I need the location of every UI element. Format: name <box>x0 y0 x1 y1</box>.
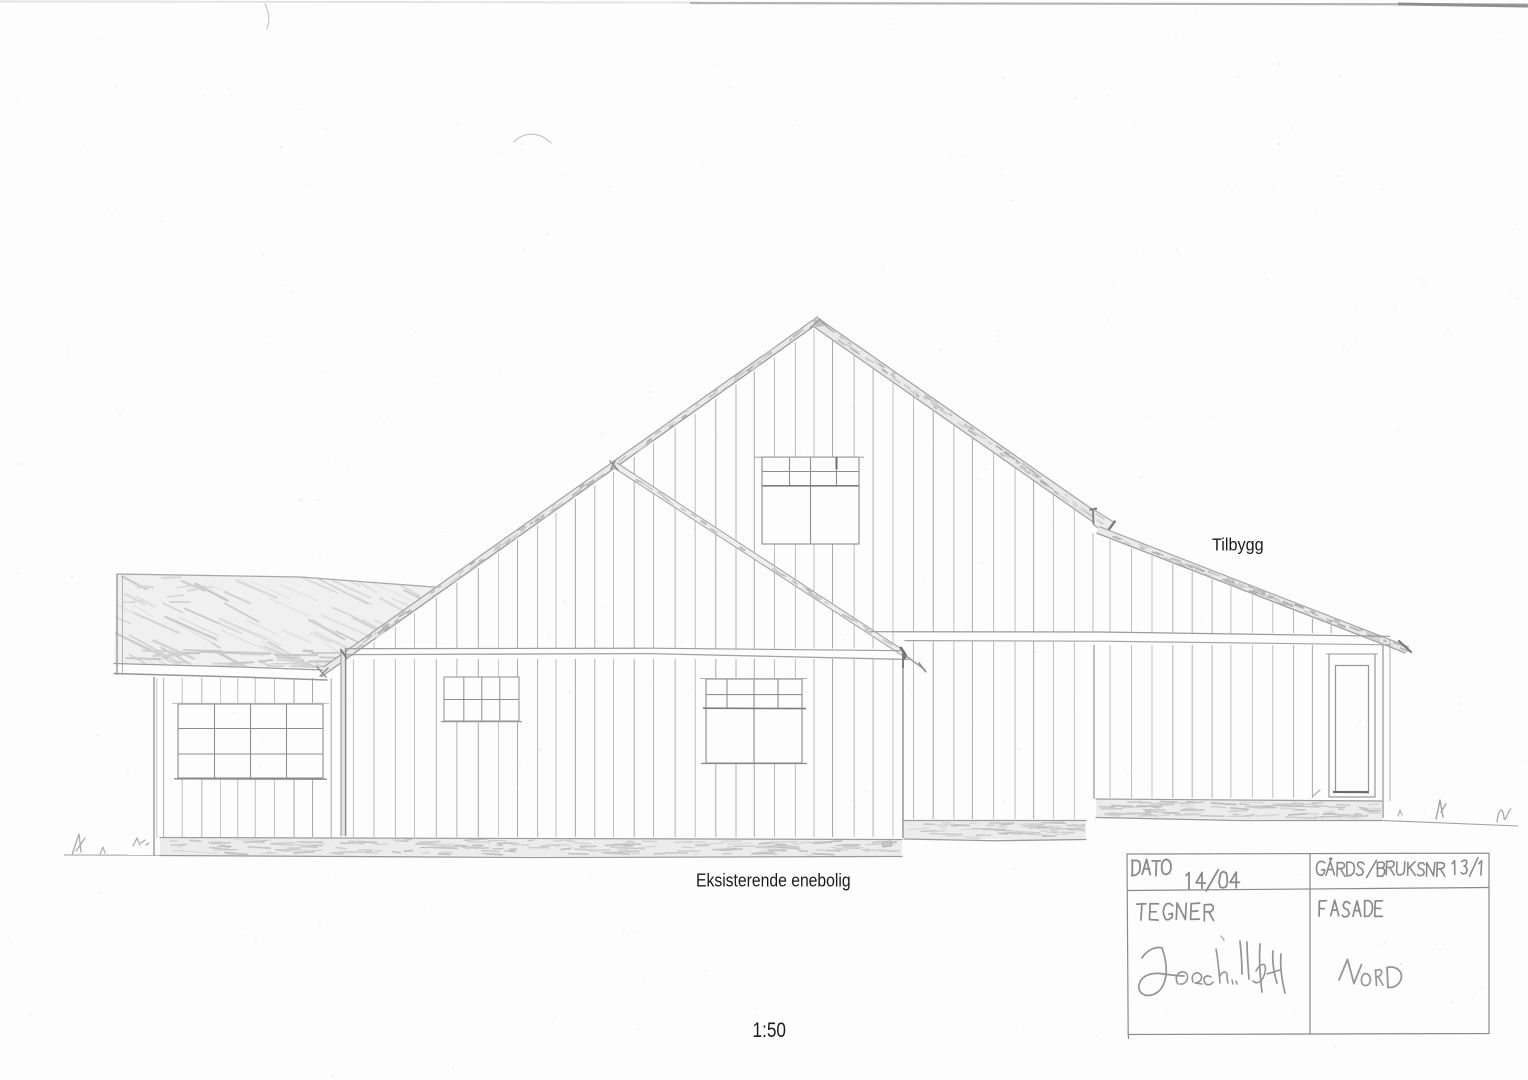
svg-text:1:50: 1:50 <box>753 1020 787 1043</box>
svg-text:Tilbygg: Tilbygg <box>1212 535 1264 555</box>
svg-text:Eksisterende enebolig: Eksisterende enebolig <box>696 869 851 891</box>
